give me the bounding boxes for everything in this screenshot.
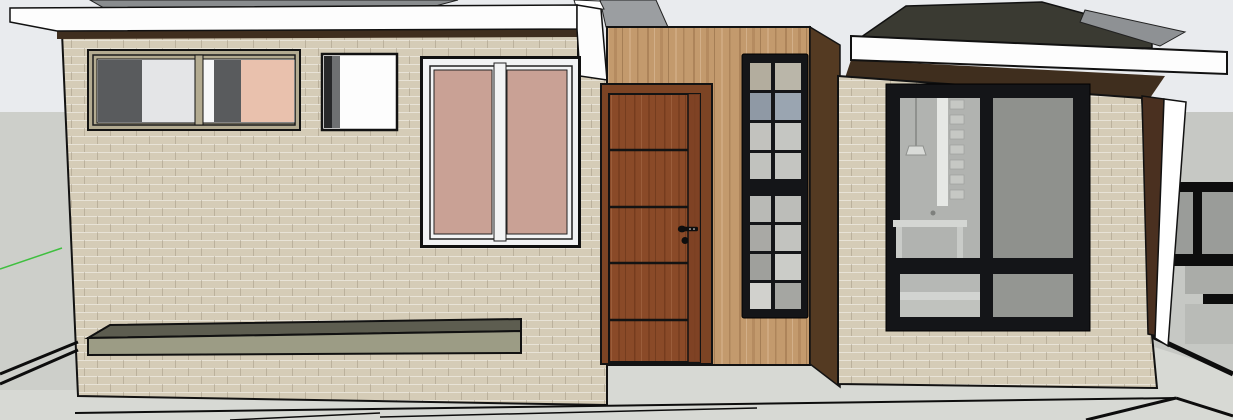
gate-low-rail [1203, 294, 1233, 304]
strip-window[interactable] [88, 50, 300, 130]
gate-base [1185, 304, 1233, 344]
sidelight-pane-r8-left [750, 283, 771, 309]
interior-knob [931, 211, 936, 216]
sidelight-pane-r7-left [750, 254, 771, 280]
gate-top-rail [1176, 182, 1233, 192]
gate-panel-lower [1185, 266, 1233, 294]
strip-window-pane-dark-2 [214, 60, 241, 122]
sidelight-pane-r5-right [775, 196, 801, 222]
entry-door[interactable] [601, 84, 712, 364]
sidelight-pane-r5-left [750, 196, 771, 222]
small-window[interactable] [322, 54, 397, 130]
small-window-dark-strip-2 [332, 56, 340, 128]
roof-corner-over-entry[interactable] [600, 0, 668, 27]
sidelight-pane-r2-left [750, 93, 771, 120]
sidelight-pane-r4-left [750, 153, 771, 179]
sidelight-pane-r8-right [775, 283, 801, 309]
pendant-lamp-shade [906, 146, 926, 155]
planter-bench[interactable] [88, 319, 521, 355]
large-black-frame-window[interactable] [886, 84, 1090, 331]
pink-window-glass-right [507, 70, 567, 234]
big-window-pane-ur [993, 98, 1073, 258]
sidelight-pane-r3-left [750, 123, 771, 150]
strip-window-stile [195, 55, 203, 125]
sidelight-grid-window[interactable] [742, 54, 808, 318]
right-wing[interactable] [838, 2, 1227, 388]
sidelight-pane-r3-right [775, 123, 801, 150]
strip-window-pane-peach [241, 60, 294, 122]
sidelight-pane-r1-left [750, 63, 771, 90]
shelf-ladder [950, 100, 964, 199]
left-wing[interactable] [10, 0, 668, 405]
entry-recess-side-wall[interactable] [810, 27, 840, 387]
pink-window-mullion [494, 63, 506, 241]
strip-window-pane-dark-1 [98, 60, 142, 122]
sidelight-pane-r6-left [750, 225, 771, 251]
interior-bright-strip [937, 98, 948, 206]
desk-top [893, 220, 967, 227]
3d-viewport[interactable] [0, 0, 1233, 420]
interior-floor [900, 300, 980, 317]
gate-panel-upper [1176, 192, 1233, 254]
entry-recess[interactable] [601, 27, 840, 387]
sidelight-mid-rail [747, 181, 803, 194]
sidelight-pane-r7-right [775, 254, 801, 280]
sidelight-pane-r2-right [775, 93, 801, 120]
sidelight-pane-r1-right [775, 63, 801, 90]
sidelight-pane-r6-right [775, 225, 801, 251]
sidelight-pane-r4-right [775, 153, 801, 179]
desk-leg-left [896, 227, 902, 258]
interior-floor-band [900, 292, 980, 300]
left-wing-fascia[interactable] [10, 5, 577, 31]
pink-window-glass-left [434, 70, 492, 234]
big-window-pane-lr [993, 274, 1073, 317]
pink-sliding-window[interactable] [420, 56, 581, 248]
gate-post [1193, 192, 1202, 254]
desk-leg-right [957, 227, 963, 258]
small-window-dark-strip-1 [324, 56, 332, 128]
